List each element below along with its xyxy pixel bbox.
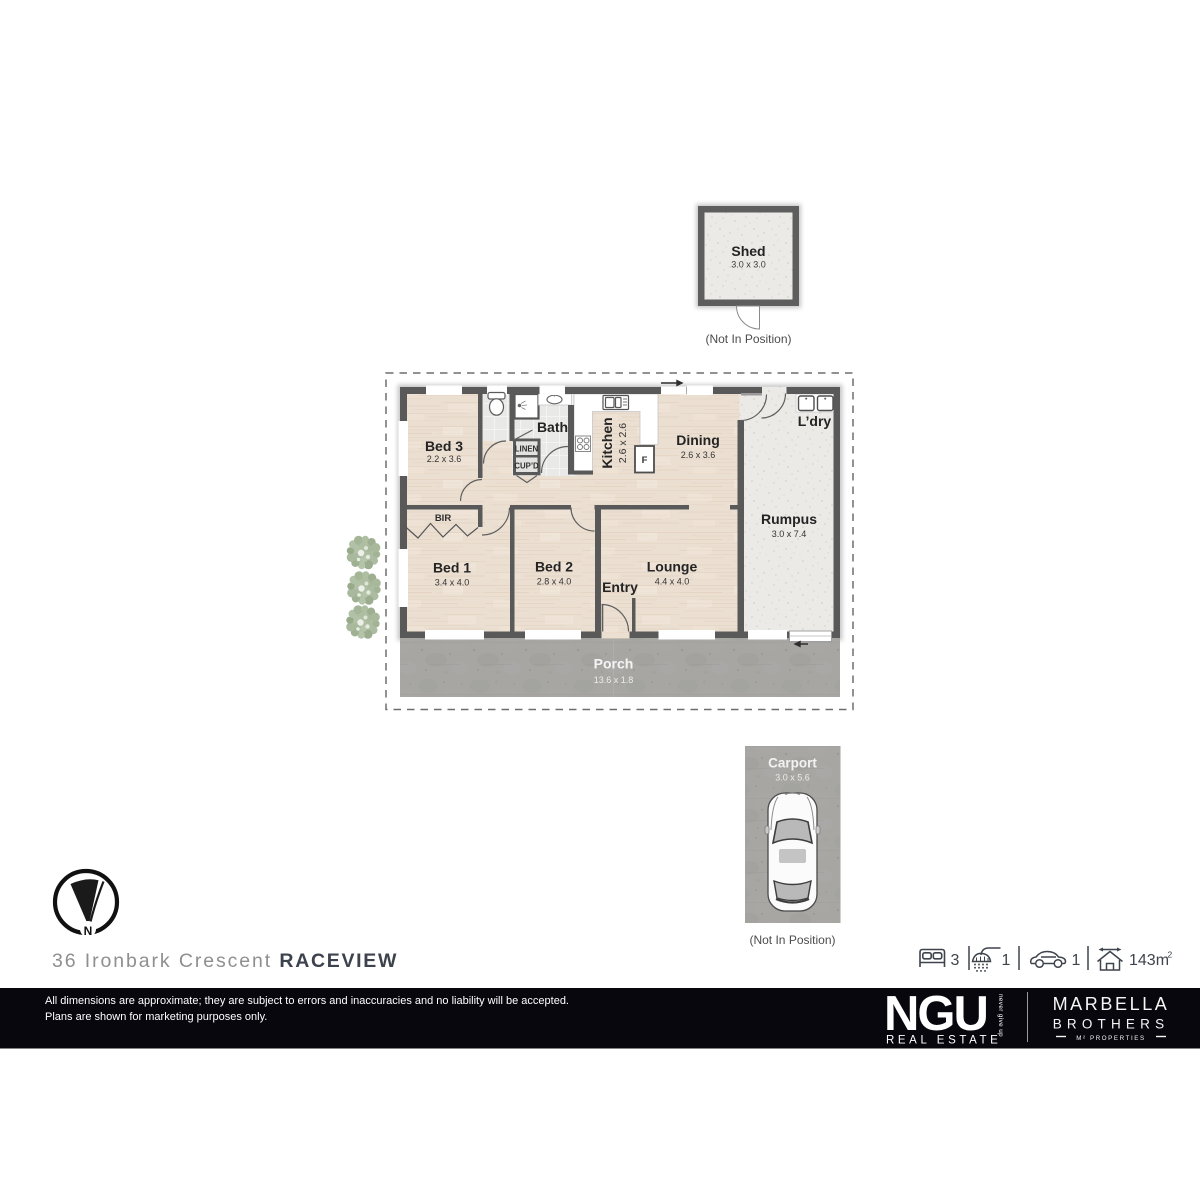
- svg-text:M² PROPERTIES: M² PROPERTIES: [1076, 1035, 1146, 1042]
- svg-text:1: 1: [1072, 952, 1081, 969]
- svg-text:Entry: Entry: [602, 579, 638, 595]
- svg-text:MARBELLA: MARBELLA: [1053, 994, 1170, 1014]
- svg-text:3.0 x 7.4: 3.0 x 7.4: [772, 529, 807, 539]
- svg-text:13.6 x 1.8: 13.6 x 1.8: [594, 675, 634, 685]
- svg-text:BIR: BIR: [435, 513, 452, 524]
- svg-text:All dimensions are approximate: All dimensions are approximate; they are…: [45, 995, 569, 1007]
- svg-text:L’dry: L’dry: [798, 413, 832, 429]
- svg-text:Dining: Dining: [676, 432, 720, 448]
- svg-text:3: 3: [951, 952, 960, 969]
- svg-text:CUP’D: CUP’D: [514, 462, 539, 471]
- svg-text:3.4 x 4.0: 3.4 x 4.0: [435, 578, 470, 588]
- svg-text:LINEN: LINEN: [515, 445, 539, 454]
- svg-text:Rumpus: Rumpus: [761, 511, 817, 527]
- svg-text:2.2 x 3.6: 2.2 x 3.6: [427, 454, 462, 464]
- svg-text:2.6 x 2.6: 2.6 x 2.6: [617, 423, 629, 463]
- svg-text:3.0 x 3.0: 3.0 x 3.0: [731, 260, 766, 270]
- svg-text:Plans are shown for marketing: Plans are shown for marketing purposes o…: [45, 1011, 267, 1023]
- svg-text:REAL ESTATE: REAL ESTATE: [886, 1035, 1001, 1047]
- svg-text:Bed 2: Bed 2: [535, 559, 573, 575]
- svg-text:NGU: NGU: [884, 987, 987, 1041]
- svg-text:2.6 x 3.6: 2.6 x 3.6: [681, 450, 716, 460]
- svg-text:F: F: [642, 455, 648, 466]
- svg-text:36 Ironbark Crescent RACEVIEW: 36 Ironbark Crescent RACEVIEW: [52, 950, 398, 972]
- svg-text:Porch: Porch: [594, 656, 634, 672]
- svg-text:(Not In Position): (Not In Position): [705, 332, 791, 346]
- svg-text:Bed 3: Bed 3: [425, 438, 463, 454]
- svg-text:143m: 143m: [1129, 952, 1169, 969]
- svg-text:Lounge: Lounge: [647, 559, 698, 575]
- svg-text:Carport: Carport: [768, 756, 817, 771]
- svg-text:Shed: Shed: [731, 243, 765, 259]
- svg-text:1: 1: [1002, 952, 1011, 969]
- svg-text:2: 2: [1168, 950, 1173, 960]
- svg-text:3.0 x 5.6: 3.0 x 5.6: [775, 773, 810, 783]
- svg-text:Bath: Bath: [537, 419, 568, 435]
- svg-text:Bed 1: Bed 1: [433, 560, 471, 576]
- svg-text:4.4 x 4.0: 4.4 x 4.0: [655, 577, 690, 587]
- svg-text:BROTHERS: BROTHERS: [1053, 1017, 1170, 1032]
- svg-text:N: N: [84, 924, 93, 938]
- svg-text:(Not In Position): (Not In Position): [749, 933, 835, 947]
- svg-text:Kitchen: Kitchen: [599, 417, 615, 468]
- svg-text:never give up: never give up: [997, 994, 1004, 1037]
- svg-text:2.8 x 4.0: 2.8 x 4.0: [537, 577, 572, 587]
